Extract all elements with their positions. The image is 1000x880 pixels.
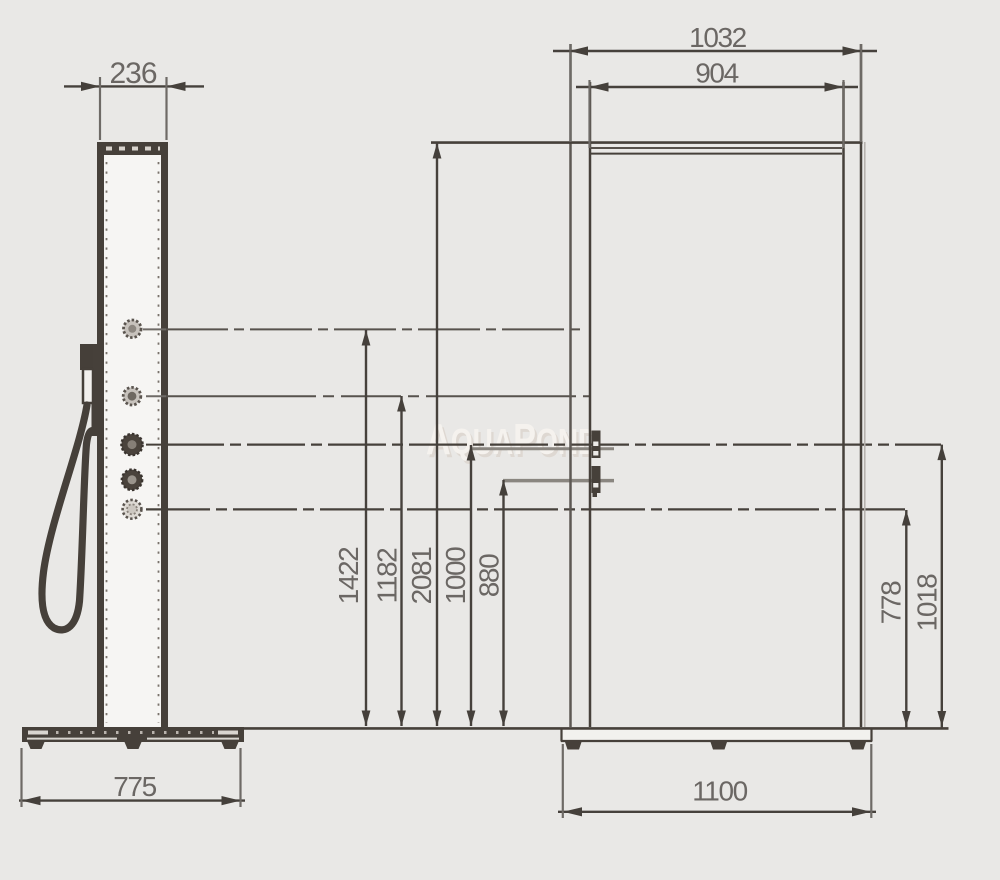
svg-text:1100: 1100 <box>692 776 747 807</box>
svg-text:1422: 1422 <box>333 547 364 605</box>
svg-text:AQUAPOND: AQUAPOND <box>426 415 598 464</box>
svg-text:778: 778 <box>876 581 907 624</box>
svg-text:880: 880 <box>474 554 505 597</box>
svg-text:775: 775 <box>113 771 156 802</box>
svg-text:1032: 1032 <box>689 22 747 53</box>
svg-text:1000: 1000 <box>440 547 471 605</box>
svg-text:236: 236 <box>109 57 156 90</box>
svg-text:2081: 2081 <box>406 547 437 605</box>
svg-text:904: 904 <box>695 58 738 89</box>
svg-text:1182: 1182 <box>372 548 403 603</box>
svg-text:1018: 1018 <box>912 574 943 632</box>
